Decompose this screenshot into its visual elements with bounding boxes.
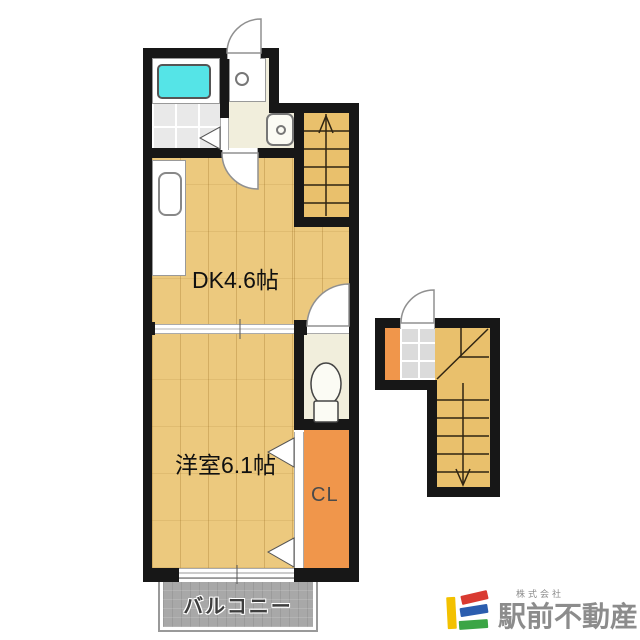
wall-bathroom-dk — [143, 148, 222, 158]
dk-label: DK4.6帖 — [192, 261, 279, 295]
toilet-room-floor — [304, 334, 349, 420]
logo-red-bar-icon — [460, 590, 488, 605]
ext-doorway — [400, 318, 435, 329]
wall-bottom-right — [294, 568, 358, 582]
toilet-doorway — [307, 320, 349, 334]
shower-tile-floor — [152, 104, 220, 152]
winder-stairs-floor — [435, 328, 490, 380]
washing-machine-drum-icon — [276, 125, 286, 135]
ext-wall-inner-left — [427, 380, 437, 497]
balcony: バルコニー — [158, 577, 318, 632]
wall-toilet-left — [294, 334, 304, 422]
wall-left — [143, 48, 152, 582]
balcony-label: バルコニー — [183, 590, 293, 619]
company-name: 駅前不動産 — [498, 595, 638, 635]
lower-stairs-floor — [437, 380, 490, 487]
balcony-window-icon — [179, 568, 294, 578]
wall-top-a — [143, 48, 227, 58]
vanity-basin-icon — [235, 72, 249, 86]
closet-door-track — [294, 432, 304, 568]
wall-below-stairs — [294, 217, 358, 227]
entrance-doorway — [227, 48, 261, 59]
logo-green-bar-icon — [459, 619, 489, 630]
wall-toilet-closet — [294, 419, 358, 430]
closet-label: CL — [311, 484, 339, 507]
wall-bottom-left — [143, 568, 179, 582]
bathtub-icon — [157, 64, 211, 99]
bathroom-doorway — [220, 118, 229, 150]
sliding-door-icon — [155, 324, 294, 334]
wall-right — [349, 103, 359, 582]
wall-above-stairs — [269, 103, 358, 113]
wall-slide-stub-left — [143, 322, 155, 335]
dk-floor-east — [294, 227, 349, 326]
floor-plan: バルコニー — [0, 0, 640, 640]
western-room-label: 洋室6.1帖 — [175, 446, 276, 480]
genkan-tile — [400, 328, 435, 380]
interior-stairs-floor — [304, 113, 349, 217]
ext-wall-bottom — [427, 487, 500, 497]
wall-corridor-dk — [258, 148, 294, 158]
logo-blue-bar-icon — [459, 604, 488, 617]
logo-yellow-bar-icon — [446, 597, 457, 629]
wall-slide-stub-right — [294, 320, 307, 335]
genkan-orange-strip — [385, 328, 400, 380]
ext-wall-right — [490, 318, 500, 497]
kitchen-sink-icon — [158, 172, 182, 216]
wall-stairs-left — [294, 108, 304, 227]
